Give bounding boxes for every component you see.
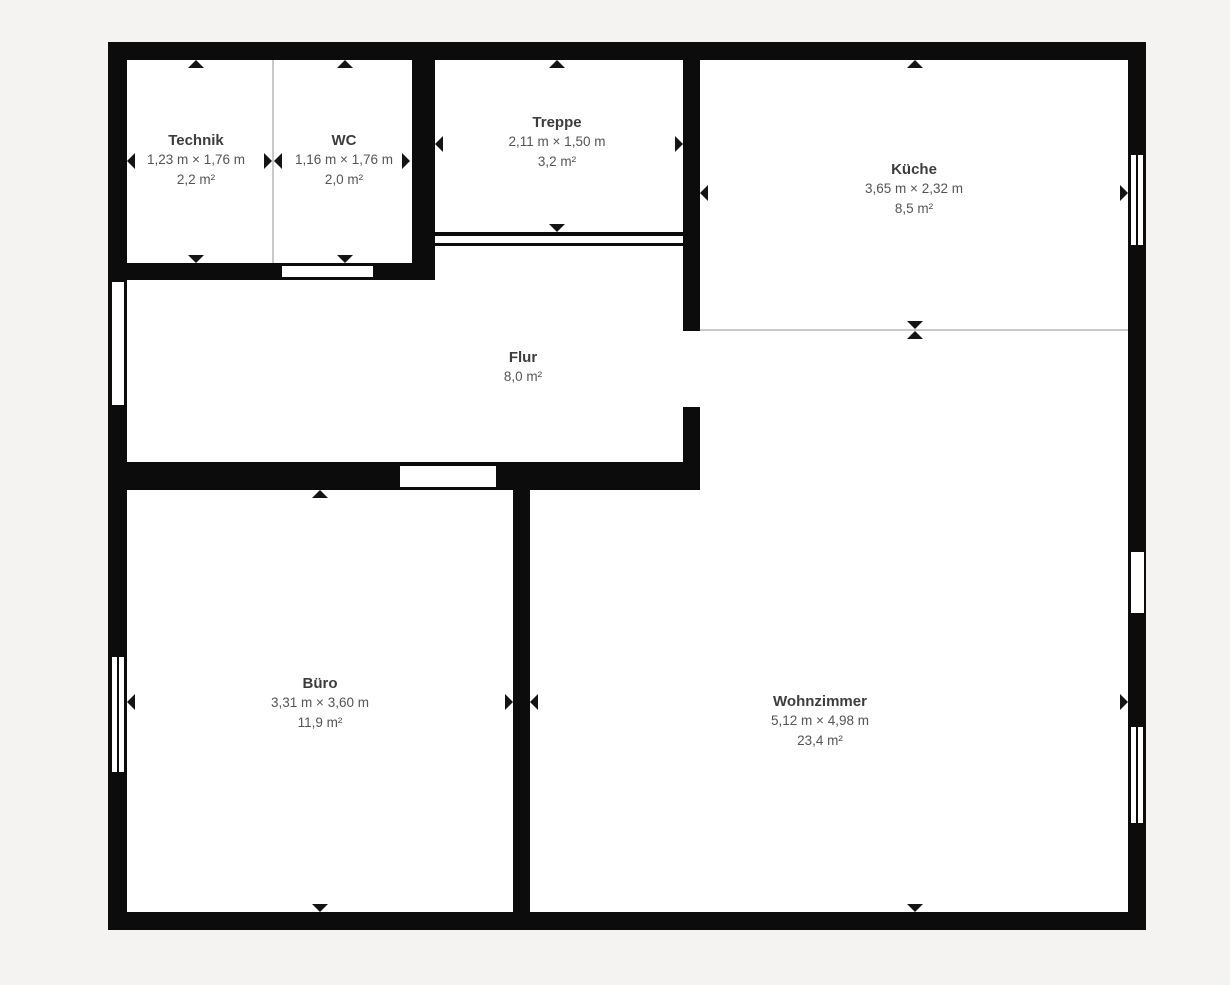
wohnzimmer-arrow-right-icon — [1120, 694, 1128, 710]
room-area: 2,0 m² — [295, 170, 393, 190]
technik-arrow-up-icon — [188, 60, 204, 68]
room-area: 8,5 m² — [865, 199, 963, 219]
room-dims: 5,12 m × 4,98 m — [771, 711, 869, 731]
technik-arrow-down-icon — [188, 255, 204, 263]
floorplan-canvas: Technik 1,23 m × 1,76 m 2,2 m² WC 1,16 m… — [0, 0, 1230, 985]
kueche-arrow-up-icon — [907, 60, 923, 68]
wc-arrow-down-icon — [337, 255, 353, 263]
room-label-technik: Technik 1,23 m × 1,76 m 2,2 m² — [147, 131, 245, 190]
treppe-arrow-left-icon — [435, 136, 443, 152]
wc-door — [282, 266, 373, 277]
wohnzimmer-right-door — [1131, 552, 1144, 613]
room-name: Küche — [865, 160, 963, 179]
wohnzimmer-arrow-down-icon — [907, 904, 923, 912]
room-area: 23,4 m² — [771, 731, 869, 751]
buero-window — [112, 657, 124, 772]
kueche-arrow-down-icon — [907, 321, 923, 329]
room-label-treppe: Treppe 2,11 m × 1,50 m 3,2 m² — [509, 113, 606, 172]
room-dims: 2,11 m × 1,50 m — [509, 132, 606, 152]
room-area: 11,9 m² — [271, 713, 369, 733]
kueche-window — [1131, 155, 1143, 245]
room-name: Treppe — [509, 113, 606, 132]
kueche-arrow-right-icon — [1120, 185, 1128, 201]
flur-door — [400, 466, 496, 487]
wall-technik-wc-bottom — [127, 263, 435, 280]
treppe-arrow-right-icon — [675, 136, 683, 152]
room-label-flur: Flur 8,0 m² — [504, 348, 542, 387]
wall-buero-wohnzimmer — [513, 490, 530, 912]
treppe-arrow-down-icon — [549, 224, 565, 232]
entrance-door — [112, 282, 124, 405]
room-area: 3,2 m² — [509, 152, 606, 172]
room-name: Büro — [271, 674, 369, 693]
buero-arrow-left-icon — [127, 694, 135, 710]
wc-arrow-up-icon — [337, 60, 353, 68]
room-dims: 1,16 m × 1,76 m — [295, 150, 393, 170]
room-name: Wohnzimmer — [771, 692, 869, 711]
technik-arrow-left-icon — [127, 153, 135, 169]
wohnzimmer-arrow-up-icon — [907, 331, 923, 339]
room-label-buero: Büro 3,31 m × 3,60 m 11,9 m² — [271, 674, 369, 733]
room-name: WC — [295, 131, 393, 150]
room-area: 2,2 m² — [147, 170, 245, 190]
buero-arrow-down-icon — [312, 904, 328, 912]
kueche-arrow-left-icon — [700, 185, 708, 201]
buero-arrow-up-icon — [312, 490, 328, 498]
room-dims: 3,65 m × 2,32 m — [865, 179, 963, 199]
treppe-edge-lower-line — [435, 243, 683, 246]
room-label-wohnzimmer: Wohnzimmer 5,12 m × 4,98 m 23,4 m² — [771, 692, 869, 751]
room-label-wc: WC 1,16 m × 1,76 m 2,0 m² — [295, 131, 393, 190]
wall-treppe-kueche — [683, 60, 700, 331]
wc-arrow-left-icon — [274, 153, 282, 169]
treppe-edge-upper-line — [435, 232, 683, 236]
wohnzimmer-arrow-left-icon — [530, 694, 538, 710]
room-name: Technik — [147, 131, 245, 150]
room-name: Flur — [504, 348, 542, 367]
room-label-kueche: Küche 3,65 m × 2,32 m 8,5 m² — [865, 160, 963, 219]
wall-flur-right-lower — [683, 407, 700, 462]
technik-arrow-right-icon — [264, 153, 272, 169]
room-dims: 3,31 m × 3,60 m — [271, 693, 369, 713]
room-area: 8,0 m² — [504, 367, 542, 387]
wc-arrow-right-icon — [402, 153, 410, 169]
wohnzimmer-window — [1131, 727, 1143, 823]
room-dims: 1,23 m × 1,76 m — [147, 150, 245, 170]
wall-wc-right — [412, 60, 435, 280]
treppe-arrow-up-icon — [549, 60, 565, 68]
buero-arrow-right-icon — [505, 694, 513, 710]
